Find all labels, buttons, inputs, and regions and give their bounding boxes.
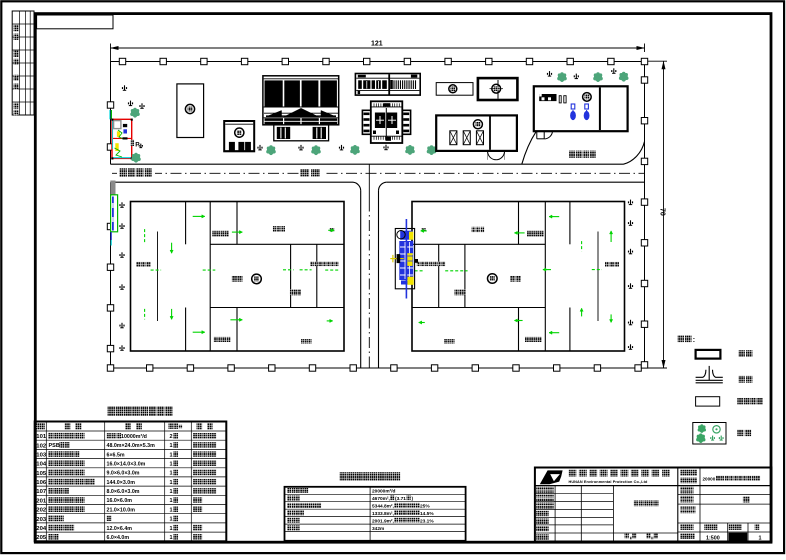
svg-text:20000: 20000 (703, 477, 716, 482)
svg-text:HUNAN Environmental Protecti: HUNAN Environmental Protection Co.,Ltd (569, 480, 648, 484)
svg-text:25%: 25% (420, 504, 430, 510)
svg-text::: : (693, 337, 695, 344)
svg-text:203: 203 (36, 517, 47, 523)
svg-text:16.0×6.0m: 16.0×6.0m (107, 498, 133, 504)
svg-text:PSB: PSB (49, 443, 60, 449)
svg-text:104: 104 (36, 462, 47, 468)
svg-text:144.0×3.0m: 144.0×3.0m (107, 480, 136, 486)
svg-text:1: 1 (170, 489, 173, 495)
svg-text:2: 2 (170, 434, 173, 440)
svg-text:6.0×4.0m: 6.0×4.0m (107, 535, 130, 541)
svg-text:205: 205 (36, 535, 47, 541)
svg-text:(3.71: (3.71 (395, 496, 406, 502)
svg-text:1333.8m²,: 1333.8m², (372, 511, 395, 517)
svg-text:2001.9m²,: 2001.9m², (372, 518, 395, 524)
svg-text:201: 201 (36, 498, 47, 504)
svg-text:204: 204 (36, 526, 47, 532)
svg-text:342m: 342m (372, 526, 384, 532)
svg-text:8.0×6.0×3.0m: 8.0×6.0×3.0m (107, 489, 140, 495)
svg-text:10000m³/d: 10000m³/d (121, 434, 147, 440)
svg-text:202: 202 (36, 508, 47, 514)
svg-text:107: 107 (36, 489, 47, 495)
svg-text:9.0×6.0×3.0m: 9.0×6.0×3.0m (107, 471, 140, 477)
svg-text:121: 121 (371, 41, 383, 48)
svg-text:14.5%: 14.5% (420, 511, 434, 517)
svg-text:103: 103 (36, 452, 47, 458)
svg-text:1: 1 (170, 461, 173, 467)
svg-text:6×6.5m: 6×6.5m (107, 452, 125, 458)
svg-text:1: 1 (170, 517, 173, 523)
svg-text:1: 1 (170, 443, 173, 449)
svg-text:23.1%: 23.1% (420, 518, 434, 524)
svg-text:102: 102 (36, 443, 47, 449)
svg-text:48.0m×24.0m×5.3m: 48.0m×24.0m×5.3m (107, 443, 156, 449)
svg-text:4670m²,: 4670m², (372, 496, 391, 502)
svg-text:101: 101 (36, 434, 47, 440)
svg-text:105: 105 (36, 471, 47, 477)
svg-text:1:500: 1:500 (706, 535, 720, 541)
svg-text:16.0×14.0×3.0m: 16.0×14.0×3.0m (107, 461, 146, 467)
svg-text:20000m³/d: 20000m³/d (372, 489, 396, 495)
svg-text:1: 1 (170, 535, 173, 541)
svg-text:70: 70 (659, 208, 666, 216)
svg-text:106: 106 (36, 480, 47, 486)
svg-text:1: 1 (170, 498, 173, 504)
svg-text:12.0×6.4m: 12.0×6.4m (107, 526, 133, 532)
svg-text:1: 1 (170, 471, 173, 477)
svg-text:1: 1 (170, 507, 173, 513)
svg-text:1: 1 (170, 480, 173, 486)
svg-text:21.0×10.0m: 21.0×10.0m (107, 507, 136, 513)
svg-text:5344.8m²,: 5344.8m², (372, 504, 395, 510)
svg-text:1: 1 (170, 452, 173, 458)
svg-text:1: 1 (170, 526, 173, 532)
svg-text:1: 1 (759, 535, 762, 541)
